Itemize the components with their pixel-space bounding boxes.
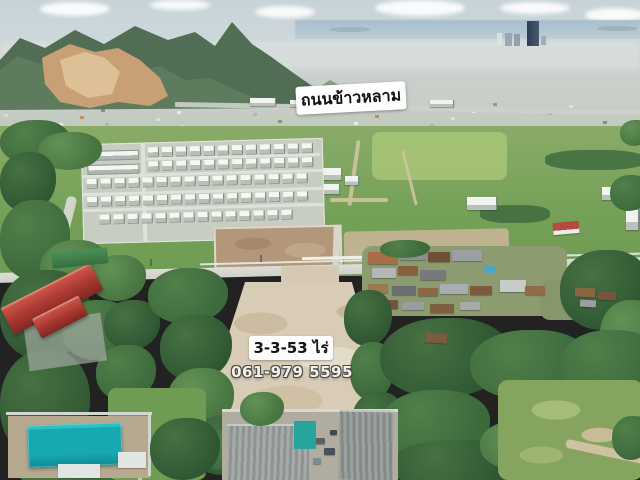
foreground-trees	[0, 0, 640, 480]
tree-cluster	[150, 418, 220, 480]
aerial-photo: ถนนข้าวหลาม 3-3-53 ไร่ 061-979 5595	[0, 0, 640, 480]
phone-number-label: 061-979 5595	[230, 362, 354, 382]
land-area-label: 3-3-53 ไร่	[249, 336, 333, 360]
tree-cluster	[612, 416, 640, 460]
tree-cluster	[240, 392, 284, 426]
road-name-label: ถนนข้าวหลาม	[295, 81, 406, 115]
